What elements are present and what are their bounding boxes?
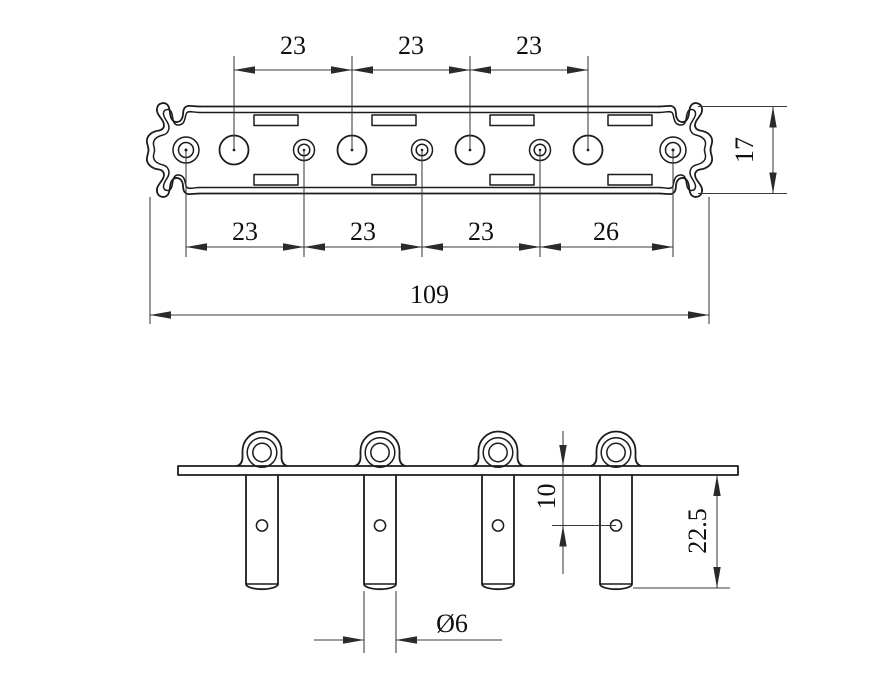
dim-label-hole-offset: 10 [532,484,561,510]
post-body [246,475,278,589]
tuner-plate-drawing: 23 23 23 23 23 23 26 109 [0,0,879,685]
slot-top-3 [490,115,534,126]
dim-label-lower-2: 23 [350,217,376,246]
plate-end-bottom-left [147,150,200,197]
dim-label-post-length: 22.5 [683,508,712,554]
mounting-slots [254,115,652,185]
post-body [600,475,632,589]
post-1 [246,475,278,589]
eyelet-ring [247,438,277,468]
dim-label-post-diameter: Ø6 [436,609,468,638]
post-string-hole [492,520,503,531]
dim-hole-offset: 10 [532,431,616,574]
slot-bottom-2 [372,175,416,186]
post-3 [482,475,514,589]
eyelet-3 [473,432,523,468]
dim-label-plate-height: 17 [730,137,759,163]
dim-post-length: 22.5 [633,475,730,588]
eyelet-outer-loop [355,432,405,466]
technical-drawing-canvas: 23 23 23 23 23 23 26 109 [0,0,879,685]
plate-end-top-right [659,103,712,150]
eyelets [237,432,641,468]
post-string-hole [256,520,267,531]
post-4 [600,475,632,589]
string-posts [246,475,632,589]
eyelet-1 [237,432,287,468]
dim-label-overall-length: 109 [410,280,449,309]
slot-top-2 [372,115,416,126]
post-string-hole [374,520,385,531]
eyelet-4 [591,432,641,468]
dim-upper-spacing: 23 23 23 [234,31,588,150]
slot-top-1 [254,115,298,126]
slot-top-4 [608,115,652,126]
dim-label-upper-3: 23 [516,31,542,60]
dim-post-diameter: Ø6 [314,591,502,653]
dim-label-lower-3: 23 [468,217,494,246]
eyelet-2 [355,432,405,468]
eyelet-ring [483,438,513,468]
eyelet-ring [365,438,395,468]
eyelet-hole [607,443,625,461]
side-view: 10 22.5 Ø6 [178,431,738,653]
eyelet-hole [253,443,271,461]
slot-bottom-4 [608,175,652,186]
plate-end-top-left [147,103,200,150]
slot-bottom-3 [490,175,534,186]
plate-end-bottom-right [659,150,712,197]
eyelet-outer-loop [591,432,641,466]
eyelet-ring [601,438,631,468]
eyelet-hole [371,443,389,461]
dim-label-lower-4: 26 [593,217,619,246]
dim-label-upper-2: 23 [398,31,424,60]
eyelet-outer-loop [473,432,523,466]
dim-lower-spacing: 23 23 23 26 [186,150,673,257]
post-body [364,475,396,589]
top-view: 23 23 23 23 23 23 26 109 [147,31,787,324]
post-body [482,475,514,589]
slot-bottom-1 [254,175,298,186]
post-2 [364,475,396,589]
dim-label-lower-1: 23 [232,217,258,246]
eyelet-hole [489,443,507,461]
dim-label-upper-1: 23 [280,31,306,60]
eyelet-outer-loop [237,432,287,466]
